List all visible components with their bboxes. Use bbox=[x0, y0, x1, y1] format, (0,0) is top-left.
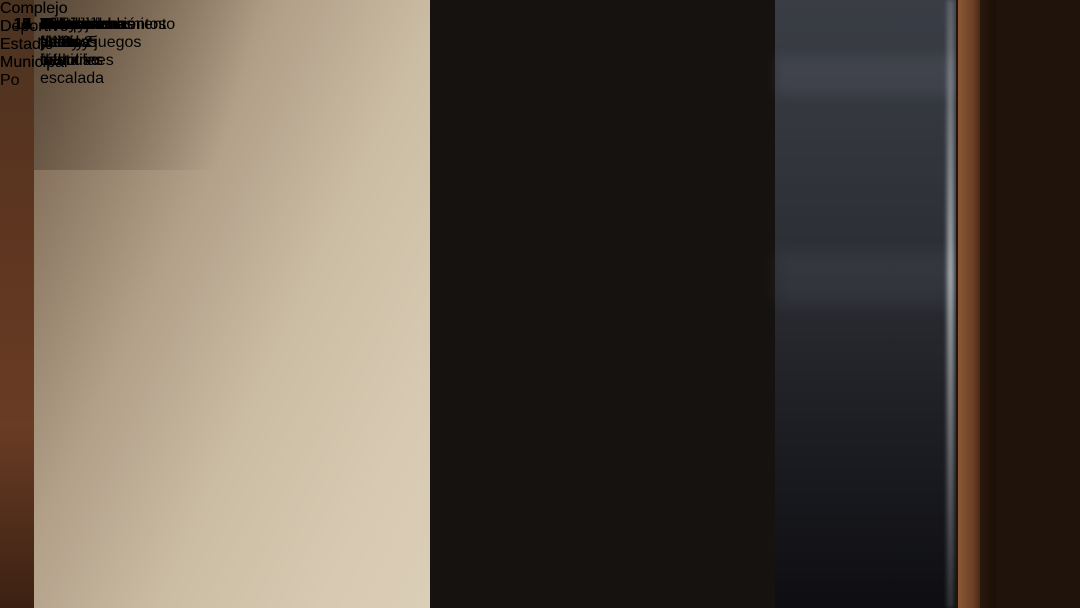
legend-item-label: Estacionamientos bbox=[40, 16, 166, 34]
reflection-band bbox=[775, 250, 960, 305]
reflection-band bbox=[775, 55, 960, 95]
door-gap bbox=[980, 0, 996, 608]
photo-of-presentation: Complejo Deportivo Estadio Municipal bbox=[0, 0, 1080, 608]
wooden-door-right bbox=[956, 0, 1080, 608]
door-frame-edge bbox=[958, 0, 980, 608]
screen-edge-highlight bbox=[947, 0, 954, 608]
door-frame-left bbox=[0, 0, 34, 608]
